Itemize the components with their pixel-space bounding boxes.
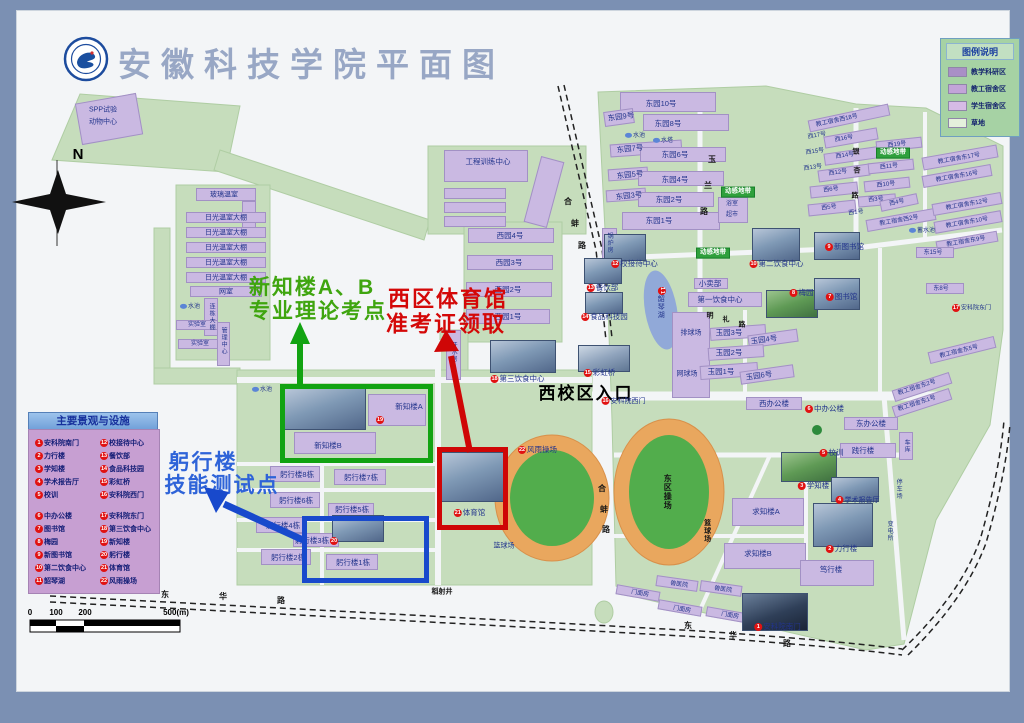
facility-item: 8梅园	[34, 535, 94, 548]
facility-item: 10第二饮食中心	[34, 562, 94, 575]
map-label: 日光温室大棚	[205, 214, 247, 221]
map-label: 路	[739, 321, 746, 328]
legend-item: 教工宿舍区	[948, 84, 1019, 94]
facility-item: 20躬行楼	[99, 549, 159, 562]
facility-number-dot: 14	[100, 465, 108, 473]
photo-thumbnail	[585, 292, 623, 314]
map-label: 躬行楼2栋	[271, 554, 305, 562]
facility-label: 食品科技园	[109, 464, 144, 474]
annotation-text: 新知楼A、B	[249, 277, 375, 299]
map-label: 200	[78, 609, 91, 617]
building	[672, 312, 710, 398]
map-label: 蚌	[571, 220, 579, 228]
facilities-legend-body: 1安科院南门2力行楼3学知楼4学术报告厅5校训6中办公楼7图书馆8梅园9新图书馆…	[28, 429, 160, 594]
poi-number-dot: 14	[581, 313, 589, 321]
map-label: 停车场	[895, 479, 901, 500]
photo-thumbnail	[490, 340, 556, 373]
poi-number-dot: 15	[584, 369, 592, 377]
map-label: 篮球场	[494, 542, 515, 549]
map-label: 日光温室大棚	[205, 274, 247, 281]
facility-number-dot: 10	[35, 564, 43, 572]
poi-number-dot: 8	[790, 289, 798, 297]
legend-item: 学生宿舍区	[948, 101, 1019, 111]
highlight-rect-xinzhilou	[280, 384, 433, 463]
facility-number-dot: 22	[100, 577, 108, 585]
legend-label: 学生宿舍区	[971, 101, 1006, 111]
map-label: 2力行楼	[825, 545, 858, 553]
map-label: 求知楼B	[744, 550, 772, 558]
map-label: 动感地带	[876, 148, 910, 159]
facility-number-dot: 6	[35, 512, 43, 520]
map-label: 稻射井	[432, 588, 453, 595]
annotation-text: 西区体育馆	[388, 287, 508, 310]
map-label: 路	[700, 208, 708, 216]
map-label: 水塔	[653, 138, 673, 144]
annotation-text: 准考证领取	[386, 312, 506, 335]
map-label: 浴室	[726, 201, 738, 207]
facility-label: 韶琴湖	[44, 576, 65, 586]
facility-number-dot: 7	[35, 525, 43, 533]
poi-number-dot: 18	[491, 375, 499, 383]
legend-swatch	[948, 84, 967, 94]
map-label: 礼	[723, 316, 730, 323]
map-label: 躬行楼8栋	[280, 471, 314, 479]
map-label: 华	[729, 632, 737, 640]
building	[444, 202, 506, 213]
facility-number-dot: 21	[100, 564, 108, 572]
facility-item: 2力行楼	[34, 449, 94, 462]
facilities-column-2: 12校接待中心13餐饮部14食品科技园15彩虹桥16安科院西门17安科院东门18…	[94, 430, 159, 593]
map-label: 16安科院西门	[601, 397, 646, 405]
map-label: 日光温室大棚	[205, 259, 247, 266]
legend-label: 草地	[971, 118, 985, 128]
map-label: 玉园2号	[716, 349, 743, 357]
facility-number-dot: 16	[100, 491, 108, 499]
poi-number-dot: 12	[611, 260, 619, 268]
map-label: 14食品科技园	[580, 313, 628, 321]
facility-label: 安科院南门	[44, 438, 79, 448]
map-label: 东园2号	[656, 196, 683, 204]
legend-label: 教工宿舍区	[971, 84, 1006, 94]
map-label: 10第二饮食中心	[749, 260, 804, 268]
facility-label: 第三饮食中心	[109, 524, 151, 534]
map-label: 合	[598, 485, 606, 493]
facility-item: 18第三饮食中心	[99, 522, 159, 535]
facilities-column-1: 1安科院南门2力行楼3学知楼4学术报告厅5校训6中办公楼7图书馆8梅园9新图书馆…	[29, 430, 94, 593]
facility-number-dot: 1	[35, 439, 43, 447]
map-label: 动感地带	[721, 187, 755, 198]
facility-label: 新知楼	[109, 537, 130, 547]
legend-swatch	[948, 118, 967, 128]
building	[444, 188, 506, 199]
map-label: 蓄水池	[909, 228, 935, 234]
poi-number-dot: 3	[798, 482, 806, 490]
map-label: 水池	[180, 304, 200, 310]
poi-number-dot: 22	[518, 446, 526, 454]
building	[444, 216, 506, 227]
poi-number-dot: 16	[602, 397, 610, 405]
map-label: 路	[783, 640, 791, 648]
facility-number-dot: 19	[100, 538, 108, 546]
map-label: 18第三饮食中心	[490, 375, 545, 383]
facility-item: 15彩虹桥	[99, 476, 159, 489]
facility-label: 安科院西门	[109, 490, 144, 500]
campus-map-screenshot: SPP试验动物中心玻璃温室日光温室大棚日光温室大棚日光温室大棚日光温室大棚日光温…	[0, 0, 1024, 723]
poi-number-dot: 6	[805, 405, 813, 413]
map-label: 西园4号	[497, 232, 524, 240]
legend-item: 教学科研区	[948, 67, 1019, 77]
map-label: 动物中心	[89, 118, 117, 125]
map-label: 东园6号	[662, 151, 689, 159]
facility-number-dot: 4	[35, 478, 43, 486]
page-title: 安徽科技学院平面图	[118, 38, 505, 86]
facility-number-dot: 20	[100, 551, 108, 559]
facility-label: 学知楼	[44, 464, 65, 474]
facility-label: 力行楼	[44, 451, 65, 461]
legend-items: 教学科研区教工宿舍区学生宿舍区草地	[941, 67, 1019, 128]
poi-number-dot: 10	[750, 260, 758, 268]
highlight-rect-gymnasium	[437, 447, 508, 530]
poi-number-dot: 4	[836, 496, 844, 504]
map-label: 玉园1号	[708, 368, 735, 376]
facility-label: 躬行楼	[109, 550, 130, 560]
map-label: 网室	[219, 288, 233, 295]
map-label: 路	[852, 192, 859, 199]
facility-number-dot: 15	[100, 478, 108, 486]
poi-number-dot: 13	[587, 284, 595, 292]
map-label: 工程训练中心	[466, 158, 511, 166]
map-label: 东园4号	[662, 176, 689, 184]
map-label: 8梅园	[789, 289, 814, 297]
legend-swatch	[948, 67, 967, 77]
map-label: 变电所	[886, 521, 892, 542]
legend-label: 教学科研区	[971, 67, 1006, 77]
map-label: 东园10号	[646, 100, 677, 108]
map-label: 东办公楼	[856, 420, 886, 428]
map-label: 22风雨操场	[517, 446, 557, 454]
map-label: 实验室	[191, 341, 209, 347]
facility-label: 学术报告厅	[44, 477, 79, 487]
facility-label: 餐饮部	[109, 451, 130, 461]
map-label: 合	[564, 198, 572, 206]
facility-label: 梅园	[44, 537, 58, 547]
facility-item: 22风雨操场	[99, 575, 159, 588]
facility-label: 风雨操场	[109, 576, 137, 586]
map-label: 东园8号	[655, 120, 682, 128]
map-label: 玻璃温室	[210, 191, 238, 198]
map-label: 蚌	[600, 506, 608, 514]
facility-label: 中办公楼	[44, 511, 72, 521]
map-label: 7图书馆	[825, 293, 858, 301]
map-label: 路	[602, 526, 610, 534]
facility-number-dot: 18	[100, 525, 108, 533]
map-label: 开水房	[450, 342, 456, 363]
highlight-rect-gongxinglou	[302, 516, 429, 583]
legend-title: 图例说明	[946, 43, 1014, 60]
map-label: 超市	[726, 212, 738, 218]
facility-item: 11韶琴湖	[34, 575, 94, 588]
map-label: SPP试验	[89, 106, 117, 113]
water-icon	[653, 138, 660, 143]
map-label: 12校接待中心	[610, 260, 658, 268]
map-label: 网球场	[677, 370, 698, 377]
map-label: 管理中心	[220, 327, 226, 355]
map-label: 西园3号	[496, 259, 523, 267]
map-label: 锅炉房	[606, 233, 612, 254]
water-icon	[180, 304, 187, 309]
map-label: 动感地带	[696, 248, 730, 259]
map-label: 躬行楼6栋	[279, 497, 313, 505]
map-label: 明	[707, 312, 714, 319]
facility-item: 12校接待中心	[99, 436, 159, 449]
poi-number-dot: 17	[952, 304, 960, 312]
facility-number-dot: 8	[35, 538, 43, 546]
legend-item: 草地	[948, 118, 1019, 128]
map-label: 15彩虹桥	[583, 369, 616, 377]
map-label: 车库	[903, 439, 909, 453]
map-label: 玉园3号	[716, 329, 743, 337]
map-label: 排球场	[681, 329, 702, 336]
facility-number-dot: 3	[35, 465, 43, 473]
photo-thumbnail	[752, 228, 800, 261]
map-label: 杏	[854, 167, 861, 174]
facility-item: 14食品科技园	[99, 462, 159, 475]
facilities-legend: 主要景观与设施 1安科院南门2力行楼3学知楼4学术报告厅5校训6中办公楼7图书馆…	[28, 412, 158, 592]
map-label: 9新图书馆	[824, 243, 864, 251]
facility-item: 19新知楼	[99, 535, 159, 548]
map-label: 水池	[625, 133, 645, 139]
facility-number-dot: 13	[100, 452, 108, 460]
facility-label: 校接待中心	[109, 438, 144, 448]
facility-item: 16安科院西门	[99, 489, 159, 502]
legend-box: 图例说明 教学科研区教工宿舍区学生宿舍区草地	[940, 38, 1020, 137]
map-label: 兰	[704, 182, 712, 190]
map-label: 践行楼	[852, 447, 875, 455]
poi-number-dot: 7	[826, 293, 834, 301]
facility-item: 17安科院东门	[99, 509, 159, 522]
map-label: 第一饮食中心	[698, 296, 743, 304]
map-label: 东	[161, 591, 169, 599]
facility-label: 图书馆	[44, 524, 65, 534]
facility-label: 新图书馆	[44, 550, 72, 560]
map-label: 0	[28, 609, 32, 617]
facility-item: 13餐饮部	[99, 449, 159, 462]
poi-number-dot: 2	[826, 545, 834, 553]
map-label: 6中办公楼	[804, 405, 844, 413]
map-label: 连栋大棚	[208, 303, 214, 331]
university-logo	[63, 36, 109, 82]
facility-number-dot: 5	[35, 491, 43, 499]
map-label: 笃行楼	[820, 566, 843, 574]
legend-swatch	[948, 101, 967, 111]
poi-number-dot: 1	[754, 623, 762, 631]
map-label: 东园1号	[646, 217, 673, 225]
map-label: 东8号	[933, 286, 948, 292]
facility-label: 校训	[44, 490, 58, 500]
map-label: 13餐饮部	[586, 284, 619, 292]
map-label: 西3号	[868, 196, 884, 204]
map-label: 1安科院南门	[753, 623, 801, 631]
facility-item: 6中办公楼	[34, 509, 94, 522]
facility-item: 21体育馆	[99, 562, 159, 575]
annotation-text: 专业理论考点	[249, 301, 387, 323]
poi-number-dot: 9	[825, 243, 833, 251]
facility-number-dot: 2	[35, 452, 43, 460]
map-label: 5校训	[819, 449, 844, 457]
facility-item: 9新图书馆	[34, 549, 94, 562]
facility-label: 安科院东门	[109, 511, 144, 521]
facility-item: 1安科院南门	[34, 436, 94, 449]
map-label: 日光温室大棚	[205, 244, 247, 251]
map-label: 求知楼A	[752, 508, 780, 516]
map-label: 100	[49, 609, 62, 617]
map-label: 日光温室大棚	[205, 229, 247, 236]
map-label: 篮球场	[703, 519, 710, 543]
map-label: 实验室	[188, 322, 206, 328]
map-label: 西办公楼	[759, 400, 789, 408]
water-icon	[625, 133, 632, 138]
annotation-text: 技能测试点	[165, 475, 280, 497]
map-label: 华	[219, 593, 227, 601]
map-label: 3学知楼	[797, 482, 830, 490]
poi-number-dot: 5	[820, 449, 828, 457]
facility-number-dot: 9	[35, 551, 43, 559]
facility-number-dot: 11	[35, 577, 43, 585]
map-label: 路	[277, 597, 285, 605]
facility-number-dot: 17	[100, 512, 108, 520]
map-label: 路	[578, 242, 586, 250]
map-label: N	[73, 147, 84, 163]
water-icon	[909, 228, 916, 233]
map-label: 11韶琴湖	[657, 287, 667, 319]
map-label: 小卖部	[699, 280, 722, 288]
facility-number-dot: 12	[100, 439, 108, 447]
facility-label: 第二饮食中心	[44, 563, 86, 573]
facility-item: 7图书馆	[34, 522, 94, 535]
facility-item: 5校训	[34, 489, 94, 502]
map-label: 500(m)	[163, 609, 189, 617]
map-label: 4学术报告厅	[835, 496, 880, 504]
annotation-text: 躬行楼	[169, 452, 238, 474]
facility-label: 体育馆	[109, 563, 130, 573]
map-label: 玉	[708, 156, 716, 164]
poi-number-dot: 11	[658, 287, 666, 295]
map-label: 水池	[252, 387, 272, 393]
map-label: 躬行楼7栋	[344, 474, 378, 482]
map-label: 东	[684, 622, 692, 630]
map-label: 东区操场	[663, 474, 671, 510]
facility-item: 3学知楼	[34, 462, 94, 475]
facility-label: 彩虹桥	[109, 477, 130, 487]
facility-item: 4学术报告厅	[34, 476, 94, 489]
map-label: 东15号	[924, 250, 943, 256]
map-label: 躬行楼5栋	[335, 506, 369, 514]
photo-thumbnail	[813, 503, 873, 547]
map-label: 17安科院东门	[951, 304, 991, 312]
map-label: 躬行楼4栋	[266, 522, 300, 530]
water-icon	[252, 387, 259, 392]
